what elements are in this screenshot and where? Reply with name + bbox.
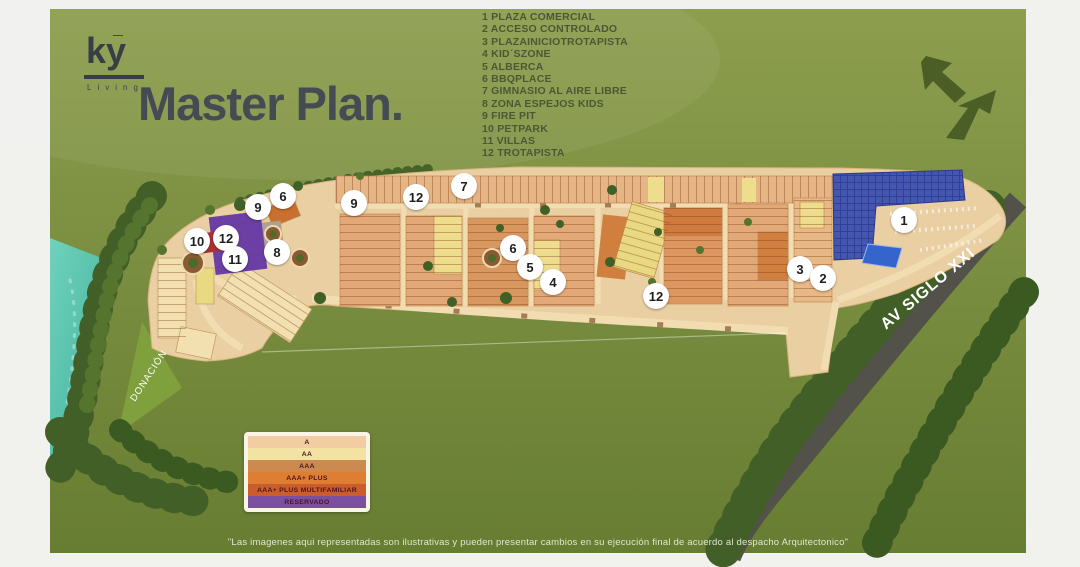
- amenity-item: 8 ZONA ESPEJOS KIDS: [482, 98, 628, 110]
- legend-row: AA: [248, 448, 366, 460]
- map-marker[interactable]: 1: [891, 207, 917, 233]
- amenities-list: 1 PLAZA COMERCIAL2 ACCESO CONTROLADO3 PL…: [482, 11, 628, 160]
- amenity-item: 1 PLAZA COMERCIAL: [482, 11, 628, 23]
- map-marker[interactable]: 8: [264, 239, 290, 265]
- map-marker[interactable]: 9: [245, 194, 271, 220]
- map-marker[interactable]: 11: [222, 246, 248, 272]
- amenity-item: 10 PETPARK: [482, 123, 628, 135]
- map-marker[interactable]: 5: [517, 254, 543, 280]
- map-marker[interactable]: 2: [810, 265, 836, 291]
- map-marker[interactable]: 4: [540, 269, 566, 295]
- compass-north-icon: [912, 46, 1007, 141]
- brand-logo: ky¯ Living: [84, 34, 144, 92]
- page-title: Master Plan.: [138, 76, 403, 131]
- map-marker[interactable]: 7: [451, 173, 477, 199]
- amenity-item: 6 BBQPLACE: [482, 73, 628, 85]
- logo-subtext: Living: [84, 83, 144, 92]
- map-marker[interactable]: 12: [643, 283, 669, 309]
- amenity-item: 7 GIMNASIO AL AIRE LIBRE: [482, 85, 628, 97]
- amenity-item: 3 PLAZAINICIOTROTAPISTA: [482, 36, 628, 48]
- legend-row: AAA+ PLUS MULTIFAMILIAR: [248, 484, 366, 496]
- category-legend: AAAAAAAAA+ PLUSAAA+ PLUS MULTIFAMILIARRE…: [244, 432, 370, 512]
- disclaimer-text: "Las imagenes aqui representadas son ilu…: [50, 537, 1026, 548]
- amenity-item: 9 FIRE PIT: [482, 110, 628, 122]
- legend-row: RESERVADO: [248, 496, 366, 508]
- map-marker[interactable]: 10: [184, 228, 210, 254]
- legend-row: AAA+ PLUS: [248, 472, 366, 484]
- amenity-item: 4 KID´SZONE: [482, 48, 628, 60]
- logo-macron-mark: ¯: [113, 26, 123, 60]
- amenity-item: 12 TROTAPISTA: [482, 147, 628, 159]
- map-marker[interactable]: 9: [341, 190, 367, 216]
- amenity-item: 2 ACCESO CONTROLADO: [482, 23, 628, 35]
- legend-row: AAA: [248, 460, 366, 472]
- map-marker[interactable]: 12: [403, 184, 429, 210]
- amenity-item: 5 ALBERCA: [482, 61, 628, 73]
- map-marker[interactable]: 6: [270, 183, 296, 209]
- amenity-item: 11 VILLAS: [482, 135, 628, 147]
- legend-row: A: [248, 436, 366, 448]
